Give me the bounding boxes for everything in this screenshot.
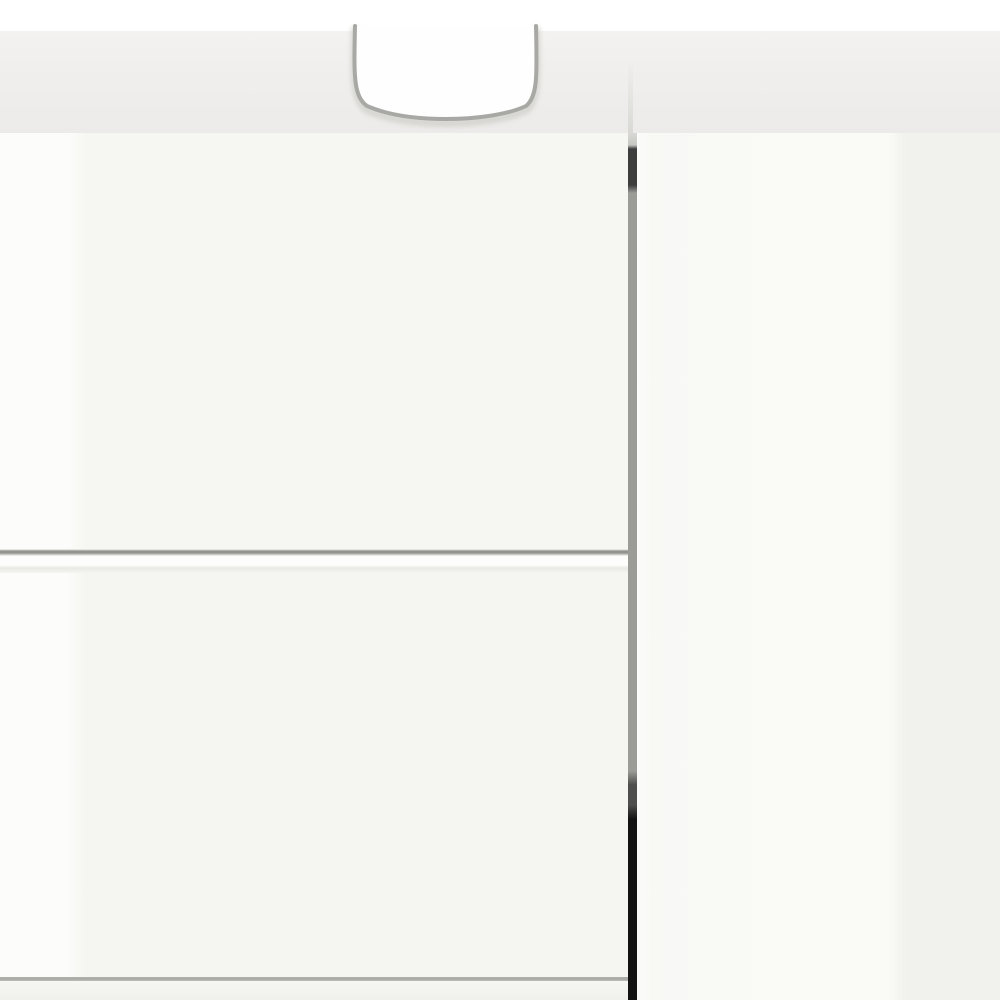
drawer-gap-seam <box>0 549 628 573</box>
countertop-joint-crease <box>628 60 633 133</box>
gloss-highlight-door-edge <box>637 133 653 1000</box>
drawer-front-lower <box>0 573 628 977</box>
door-gap-vertical <box>628 133 637 1000</box>
drawer-front-upper <box>0 133 628 549</box>
right-door-front <box>637 133 1000 1000</box>
sink-siphon-cutout <box>328 24 564 134</box>
cabinet-product-photo <box>0 0 1000 1000</box>
plinth-strip <box>0 981 628 1000</box>
cutout-opening <box>354 26 536 119</box>
